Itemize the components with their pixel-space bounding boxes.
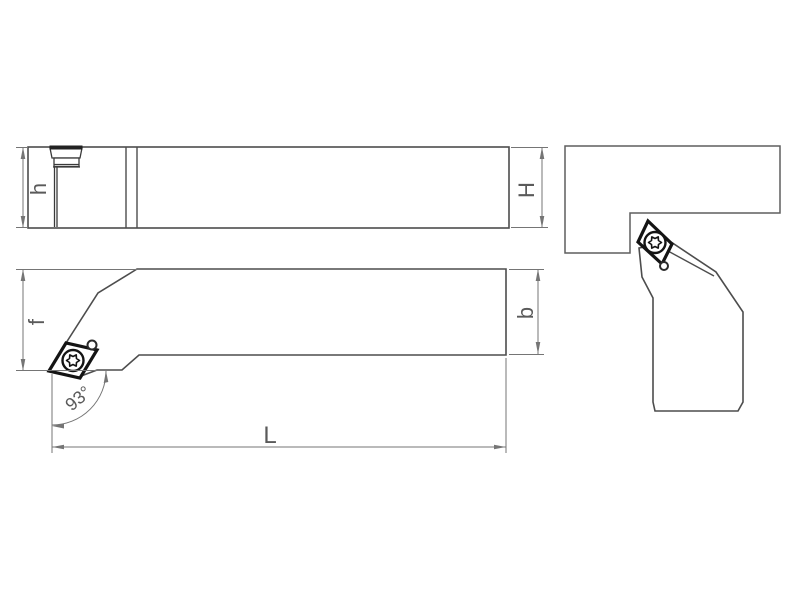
- H-arrow-down: [540, 216, 545, 228]
- b-arrow-down: [536, 342, 541, 354]
- front-view: [49, 269, 506, 378]
- H-arrow-up: [540, 147, 545, 159]
- L-arrow-left: [52, 445, 64, 450]
- b-arrow-up: [536, 269, 541, 281]
- application-pin: [660, 262, 668, 270]
- tool-holder-drawing: h H f b 9: [0, 0, 800, 600]
- top-view: [28, 147, 509, 228]
- dimension-H: H: [511, 147, 548, 228]
- b-label: b: [513, 307, 538, 319]
- technical-drawing-page: h H f b 9: [0, 0, 800, 600]
- f-arrow-up: [21, 269, 26, 281]
- application-view: [565, 146, 780, 411]
- f-label: f: [24, 318, 49, 325]
- top-view-shim: [54, 158, 79, 167]
- H-label: H: [514, 182, 539, 198]
- angle-annotation: 93°: [52, 371, 108, 453]
- front-view-body: [49, 269, 506, 376]
- h-arrow-up: [21, 147, 26, 159]
- application-tool-body: [639, 242, 743, 411]
- L-arrow-right: [494, 445, 506, 450]
- dimension-b: b: [509, 269, 544, 355]
- workpiece: [565, 146, 780, 253]
- dimension-L: L: [52, 358, 506, 453]
- angle-arrow-top: [104, 371, 109, 383]
- front-view-pin: [88, 341, 97, 350]
- h-arrow-down: [21, 216, 26, 228]
- L-label: L: [263, 422, 276, 449]
- top-view-body: [28, 147, 509, 228]
- h-label: h: [26, 183, 51, 195]
- f-arrow-down: [21, 359, 26, 371]
